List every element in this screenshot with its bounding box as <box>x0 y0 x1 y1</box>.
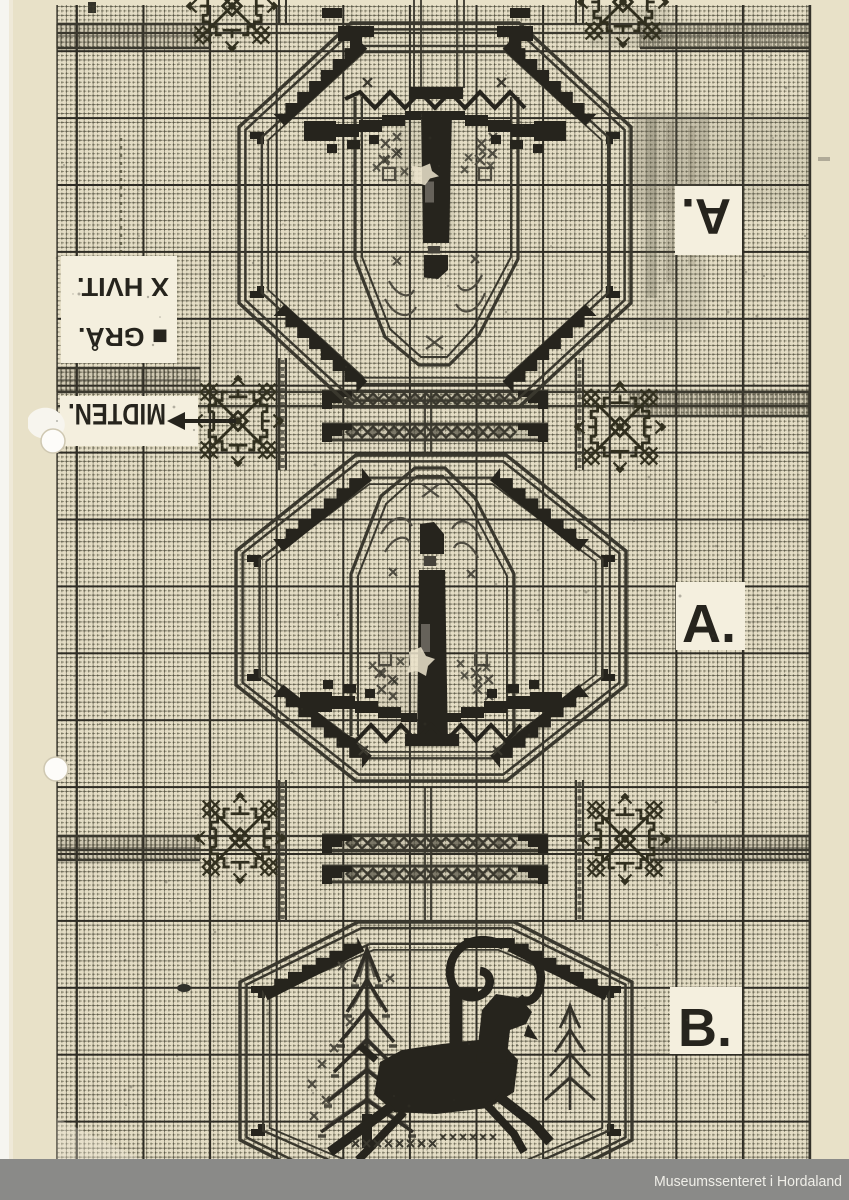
svg-text:A.: A. <box>682 594 736 654</box>
svg-text:A.: A. <box>681 188 731 244</box>
svg-text:Museumssenteret i Hordaland: Museumssenteret i Hordaland <box>654 1173 842 1190</box>
svg-text:B.: B. <box>678 998 732 1058</box>
svg-text:MIDTEN.: MIDTEN. <box>68 397 166 430</box>
svg-text:X HVIT.: X HVIT. <box>77 272 169 302</box>
svg-text:■ GRÅ.: ■ GRÅ. <box>78 322 168 352</box>
